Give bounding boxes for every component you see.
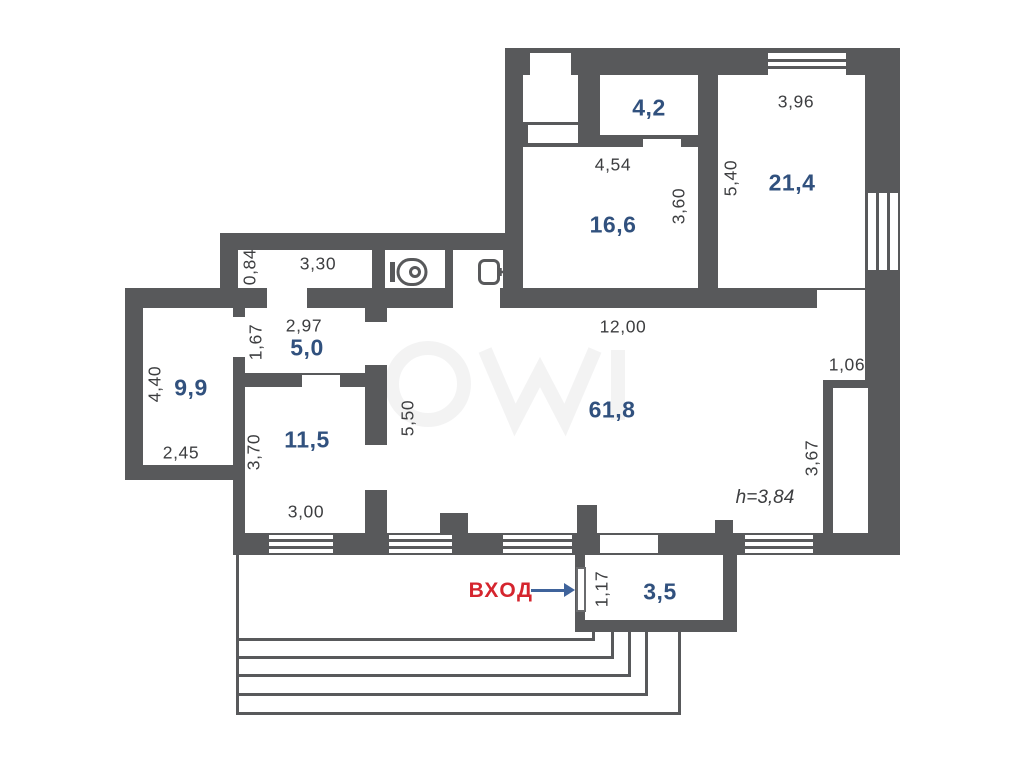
porch-step-line	[236, 674, 631, 677]
door-opening	[817, 290, 865, 308]
window-mullion	[745, 546, 813, 549]
window-mullion	[876, 193, 879, 270]
wall-segment	[823, 380, 833, 535]
room-area-3-5: 3,5	[643, 579, 676, 606]
entrance-label: ВХОД	[469, 579, 534, 603]
door-opening	[267, 288, 307, 308]
dim-9-9-side: 4,40	[145, 366, 166, 402]
window-mullion	[768, 66, 846, 69]
door-opening	[233, 317, 245, 357]
dim-16-6-side: 3,60	[669, 188, 690, 224]
wall-segment	[445, 250, 453, 290]
porch-step-line	[611, 632, 614, 659]
window-mullion	[269, 539, 333, 542]
window-mullion	[389, 546, 452, 549]
wall-segment	[440, 513, 468, 535]
room-area-21-4: 21,4	[769, 170, 816, 197]
dim-5-0-top: 2,97	[286, 316, 322, 337]
dim-corridor-top: 3,30	[300, 254, 336, 275]
window	[868, 193, 898, 270]
dim-11-5-bottom: 3,00	[288, 502, 324, 523]
dim-21-4-top: 3,96	[778, 92, 814, 113]
porch-step-line	[236, 555, 239, 715]
window	[269, 535, 333, 553]
porch-step-line	[592, 632, 595, 641]
wall-segment	[823, 380, 900, 388]
room-area-4-2: 4,2	[632, 95, 665, 122]
room-area-16-6: 16,6	[590, 212, 637, 239]
wall-segment	[125, 288, 143, 480]
window-mullion	[745, 539, 813, 542]
dim-11-5-side: 3,70	[244, 434, 265, 470]
entrance-arrow	[531, 589, 565, 592]
wall-segment	[503, 250, 523, 290]
wall-segment	[715, 520, 733, 535]
room-area-9-9: 9,9	[174, 375, 207, 402]
door-opening	[302, 375, 340, 387]
porch-step-line	[678, 632, 681, 715]
shaft	[833, 388, 868, 533]
dim-16-6-top: 4,54	[595, 155, 631, 176]
shaft	[528, 125, 578, 143]
dim-niche-side: 3,67	[802, 440, 823, 476]
wall-segment	[577, 505, 597, 535]
entrance-arrow-head	[564, 583, 575, 597]
dim-3-5-door: 1,17	[592, 571, 613, 607]
wall-segment	[125, 465, 238, 480]
entrance-door	[576, 567, 586, 612]
dim-5-0-side: 1,67	[246, 324, 267, 360]
door-opening	[365, 445, 387, 490]
window	[768, 53, 846, 75]
dim-61-8-top: 12,00	[600, 317, 647, 338]
window	[389, 535, 452, 553]
door-opening	[365, 322, 387, 365]
wall-segment	[220, 233, 523, 250]
porch-step-line	[236, 638, 595, 641]
dim-61-8-side: 5,50	[398, 400, 419, 436]
room-area-5-0: 5,0	[290, 335, 323, 362]
window-mullion	[503, 539, 572, 542]
door-opening	[600, 535, 658, 553]
wall-segment	[220, 250, 238, 290]
porch-step-line	[236, 656, 614, 659]
ceiling-height-note: h=3,84	[736, 487, 795, 509]
window-mullion	[768, 59, 846, 62]
porch-step-line	[628, 632, 631, 677]
dim-21-4-side: 5,40	[721, 160, 742, 196]
door-opening	[643, 139, 681, 147]
floor-plan: 4,2 16,6 21,4 5,0 9,9 11,5 61,8 3,5 3,96…	[0, 0, 1023, 767]
toilet-icon	[388, 258, 436, 286]
door-opening	[530, 53, 571, 75]
door-opening	[453, 288, 500, 308]
wall-segment	[125, 288, 900, 308]
window	[503, 535, 572, 553]
wall-segment	[575, 620, 737, 632]
wall-segment	[372, 250, 385, 290]
room-area-61-8: 61,8	[589, 397, 636, 424]
watermark	[380, 322, 650, 442]
window-mullion	[887, 193, 890, 270]
wall-segment	[698, 75, 718, 290]
room-area-11-5: 11,5	[284, 427, 330, 454]
sink-icon	[478, 259, 505, 285]
porch-step-line	[645, 632, 648, 695]
dim-niche-top: 1,06	[829, 355, 865, 376]
window-mullion	[269, 546, 333, 549]
dim-corridor-side: 0,84	[240, 249, 261, 285]
dim-9-9-bottom: 2,45	[163, 443, 199, 464]
porch-step-line	[236, 712, 681, 715]
window	[745, 535, 813, 553]
shaft	[523, 75, 578, 122]
porch-step-line	[236, 693, 648, 696]
window-mullion	[503, 546, 572, 549]
window-mullion	[389, 539, 452, 542]
